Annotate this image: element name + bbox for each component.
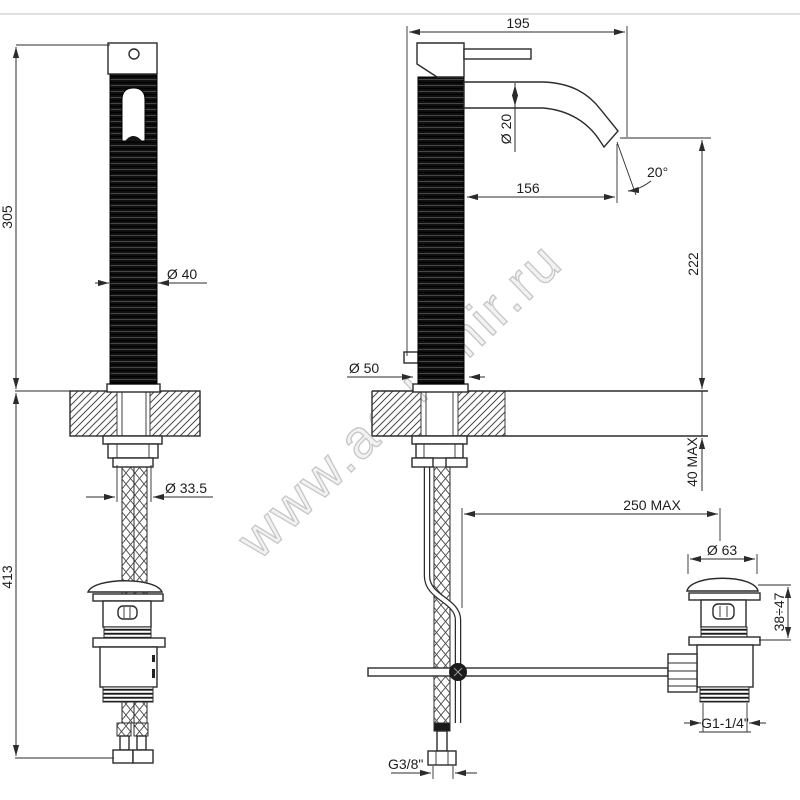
side-base-plate bbox=[413, 384, 468, 392]
front-popup-drain bbox=[88, 581, 165, 702]
front-handle-pin bbox=[129, 49, 139, 59]
dim-label-40max: 40 MAX bbox=[684, 436, 700, 486]
dim-label-dia50: Ø 50 bbox=[349, 360, 380, 376]
front-fitting-collar-right bbox=[134, 723, 148, 736]
front-drain-mark-2 bbox=[152, 669, 155, 678]
side-fitting-nut bbox=[428, 751, 456, 765]
front-base-plate bbox=[107, 384, 160, 392]
side-hose-fitting bbox=[428, 723, 456, 765]
front-handle-cap bbox=[108, 43, 157, 74]
dim-label-g38: G3/8" bbox=[388, 756, 423, 772]
side-view bbox=[368, 43, 708, 765]
front-mounting-hardware bbox=[103, 436, 162, 467]
front-drain-flange bbox=[93, 594, 163, 601]
dim-label-dia33-5: Ø 33.5 bbox=[165, 480, 207, 496]
side-countertop-hatch-right bbox=[458, 391, 505, 436]
front-drain-locknut bbox=[93, 638, 165, 647]
dim-label-g114: G1-1/4" bbox=[701, 715, 749, 731]
front-drain-tailpiece bbox=[100, 647, 157, 687]
dim-front-hose-diameter: Ø 33.5 bbox=[86, 465, 213, 502]
front-drain-thread-upper bbox=[104, 627, 151, 638]
side-fitting-stem bbox=[437, 731, 447, 751]
dim-drain-thread: G1-1/4" bbox=[684, 703, 766, 732]
dim-label-250max: 250 MAX bbox=[623, 497, 681, 513]
front-fitting-stem-right bbox=[137, 736, 146, 750]
dim-label-222: 222 bbox=[685, 252, 701, 276]
dim-label-38-47: 38÷47 bbox=[771, 592, 787, 631]
drain-side-view bbox=[668, 578, 760, 702]
front-fitting-nut-left bbox=[113, 750, 133, 763]
side-countertop-hatch-left bbox=[372, 391, 421, 436]
side-body-tab bbox=[404, 352, 418, 363]
front-countertop-hatch-right bbox=[150, 391, 200, 436]
side-mount-block-left bbox=[412, 458, 433, 467]
dim-spout-reach: 156 bbox=[467, 144, 617, 203]
front-fitting-collar-left bbox=[117, 723, 131, 736]
drain-thread-lower bbox=[700, 687, 749, 702]
faucet-technical-drawing: 305 413 Ø 40 Ø 33.5 bbox=[0, 0, 800, 800]
drain-locknut bbox=[689, 637, 760, 645]
front-drain-thread-lower bbox=[103, 687, 153, 702]
front-view bbox=[70, 43, 200, 763]
dim-label-20deg: 20° bbox=[647, 164, 668, 180]
front-mount-washer bbox=[103, 436, 162, 444]
front-spout-opening bbox=[122, 88, 145, 141]
drain-flange bbox=[689, 593, 760, 600]
dim-front-height-lower: 413 bbox=[0, 393, 114, 758]
dim-front-height-upper: 305 bbox=[0, 45, 110, 391]
front-drain-cap bbox=[88, 581, 162, 592]
dim-label-dia40: Ø 40 bbox=[167, 266, 198, 282]
dim-label-dia20: Ø 20 bbox=[498, 114, 514, 145]
side-handle bbox=[417, 43, 531, 77]
drain-rod-connector bbox=[668, 654, 697, 692]
side-mounting-hardware bbox=[412, 436, 467, 467]
dim-drain-cap-diameter: Ø 63 bbox=[688, 542, 757, 574]
side-fitting-collar bbox=[434, 723, 450, 731]
front-mount-step bbox=[113, 458, 153, 467]
front-countertop bbox=[70, 391, 200, 436]
side-countertop bbox=[372, 391, 708, 436]
side-handle-cap bbox=[417, 43, 464, 77]
drain-thread-upper bbox=[701, 627, 747, 637]
side-mount-washer bbox=[412, 436, 467, 444]
dim-drain-height-range: 38÷47 bbox=[758, 585, 791, 640]
dim-deck-thickness: 40 MAX bbox=[684, 391, 702, 491]
front-countertop-hatch-left bbox=[70, 391, 117, 436]
side-spout bbox=[464, 82, 618, 147]
front-hose-fittings bbox=[113, 723, 153, 763]
front-drain-mark-1 bbox=[152, 655, 155, 662]
dim-label-156: 156 bbox=[516, 180, 540, 196]
front-fitting-nut-right bbox=[133, 750, 153, 763]
side-handle-lever bbox=[464, 49, 531, 59]
side-horizontal-linkage-rod bbox=[368, 668, 668, 676]
drain-cap bbox=[687, 578, 758, 591]
side-mount-nut bbox=[416, 444, 463, 458]
drain-tailpiece bbox=[697, 645, 753, 687]
dim-spout-angle: 20° bbox=[617, 142, 668, 195]
front-fitting-stem-left bbox=[120, 736, 129, 750]
side-rod-pivot-joint bbox=[449, 663, 467, 681]
side-faucet-body bbox=[418, 77, 464, 384]
side-mount-block-right bbox=[446, 458, 467, 467]
front-drain-body bbox=[103, 601, 151, 627]
technical-drawing-page: www.aquamir.ru bbox=[0, 0, 800, 800]
front-mount-nut bbox=[108, 444, 158, 458]
dim-rod-to-drain: 250 MAX bbox=[462, 497, 720, 608]
dim-label-305: 305 bbox=[0, 205, 15, 229]
dim-label-dia63: Ø 63 bbox=[707, 542, 738, 558]
dim-label-195: 195 bbox=[506, 15, 530, 31]
dim-label-413: 413 bbox=[0, 565, 15, 589]
